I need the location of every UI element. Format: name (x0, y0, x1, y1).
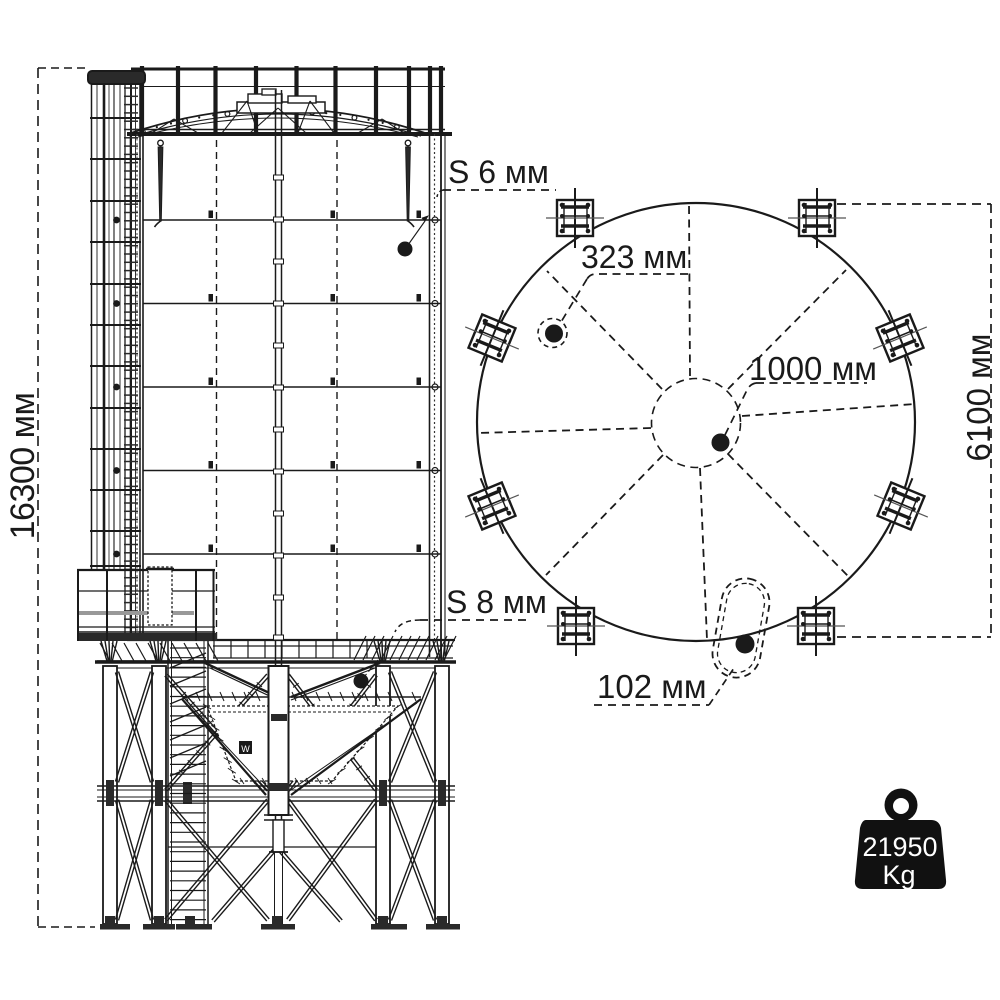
svg-text:W: W (241, 744, 250, 754)
svg-text:S 8 мм: S 8 мм (446, 584, 547, 620)
svg-text:Kg: Kg (882, 860, 915, 890)
svg-text:S 6 мм: S 6 мм (448, 154, 549, 190)
svg-text:16300 мм: 16300 мм (4, 393, 42, 540)
svg-text:21950: 21950 (862, 832, 937, 862)
svg-text:1000 мм: 1000 мм (749, 350, 877, 387)
svg-text:6100 мм: 6100 мм (960, 334, 997, 462)
svg-text:102 мм: 102 мм (597, 668, 707, 705)
svg-text:323 мм: 323 мм (581, 239, 687, 275)
